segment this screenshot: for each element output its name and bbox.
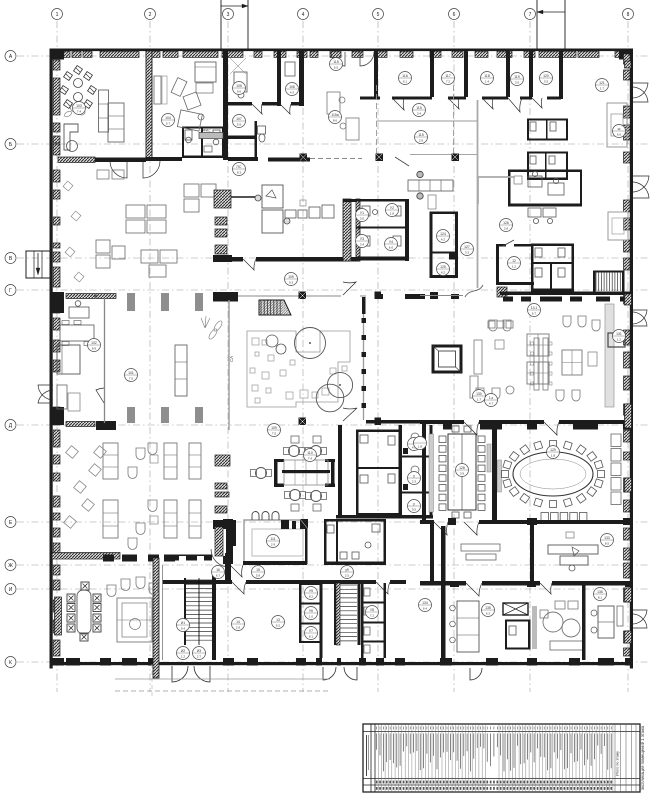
svg-text:3.4: 3.4 — [360, 242, 365, 246]
svg-text:у: у — [413, 474, 415, 478]
svg-text:110: 110 — [307, 451, 313, 455]
svg-text:8.3: 8.3 — [237, 170, 242, 174]
svg-text:125: 125 — [440, 265, 446, 269]
svg-text:136: 136 — [597, 590, 603, 594]
svg-text:7.0: 7.0 — [129, 376, 134, 380]
svg-text:115: 115 — [418, 133, 424, 137]
svg-text:6.4: 6.4 — [423, 606, 428, 610]
svg-text:8.2: 8.2 — [309, 594, 314, 598]
svg-text:ПС: ПС — [237, 165, 242, 169]
svg-text:И3: И3 — [197, 649, 201, 653]
svg-text:У5: У5 — [309, 589, 313, 593]
svg-text:6.5: 6.5 — [334, 65, 339, 69]
svg-text:107: 107 — [236, 117, 242, 121]
svg-text:14: 14 — [236, 620, 240, 624]
svg-text:4.2: 4.2 — [441, 237, 446, 241]
svg-text:1.0: 1.0 — [309, 614, 314, 618]
svg-text:104: 104 — [165, 116, 171, 120]
svg-text:4.2: 4.2 — [441, 270, 446, 274]
svg-text:9.6: 9.6 — [237, 89, 242, 93]
svg-text:111: 111 — [270, 537, 275, 541]
svg-text:109: 109 — [271, 426, 277, 430]
svg-text:7.5: 7.5 — [272, 431, 277, 435]
svg-text:6.1: 6.1 — [403, 79, 408, 83]
svg-text:106: 106 — [289, 85, 295, 89]
svg-text:И: И — [9, 587, 13, 593]
svg-text:3: 3 — [227, 12, 230, 18]
svg-text:8.9: 8.9 — [92, 346, 97, 350]
svg-text:12: 12 — [512, 259, 516, 263]
svg-text:У4: У4 — [389, 240, 393, 244]
svg-text:3.0: 3.0 — [360, 216, 365, 220]
svg-text:2.5: 2.5 — [345, 573, 350, 577]
svg-text:117: 117 — [445, 74, 451, 78]
svg-text:102: 102 — [91, 341, 97, 345]
svg-text:131: 131 — [616, 332, 622, 336]
svg-text:124: 124 — [440, 232, 446, 236]
svg-text:2.9: 2.9 — [419, 138, 424, 142]
svg-text:6.2: 6.2 — [276, 623, 281, 627]
svg-text:130: 130 — [476, 392, 482, 396]
svg-text:109: 109 — [288, 275, 294, 279]
svg-text:1.8: 1.8 — [418, 444, 423, 448]
svg-text:8: 8 — [627, 12, 630, 18]
svg-text:6.6: 6.6 — [389, 245, 394, 249]
svg-text:7.2: 7.2 — [370, 613, 375, 617]
svg-text:8.1: 8.1 — [309, 634, 314, 638]
svg-text:6.7: 6.7 — [532, 311, 537, 315]
svg-text:133: 133 — [604, 536, 610, 540]
svg-text:6: 6 — [453, 12, 456, 18]
svg-text:У6: У6 — [309, 609, 313, 613]
svg-text:У2: У2 — [390, 206, 394, 210]
svg-text:Г: Г — [9, 288, 12, 294]
svg-text:1.7: 1.7 — [600, 86, 605, 90]
svg-text:13.1: 13.1 — [531, 306, 538, 310]
svg-text:118: 118 — [484, 74, 490, 78]
svg-text:3.0: 3.0 — [515, 80, 520, 84]
svg-text:К: К — [9, 660, 12, 666]
svg-text:1.2: 1.2 — [181, 654, 186, 658]
svg-text:СА: СА — [229, 356, 234, 362]
svg-text:115: 115 — [416, 106, 422, 110]
svg-text:115а: 115а — [331, 113, 338, 117]
svg-text:6.7: 6.7 — [216, 573, 221, 577]
svg-text:4.3: 4.3 — [290, 90, 295, 94]
svg-text:8.1: 8.1 — [598, 595, 603, 599]
svg-text:1.2: 1.2 — [617, 337, 622, 341]
svg-text:15: 15 — [256, 568, 260, 572]
svg-text:7.4: 7.4 — [308, 456, 313, 460]
svg-text:У3: У3 — [360, 237, 364, 241]
svg-text:127: 127 — [464, 245, 470, 249]
svg-text:8.6: 8.6 — [333, 118, 338, 122]
svg-text:1.8: 1.8 — [390, 211, 395, 215]
svg-text:экспликация помещений 1 этажа: экспликация помещений 1 этажа — [640, 725, 645, 790]
svg-text:у: у — [413, 502, 415, 506]
svg-text:16: 16 — [216, 568, 220, 572]
svg-text:13: 13 — [276, 618, 280, 622]
svg-text:у9: у9 — [345, 568, 349, 572]
svg-text:126: 126 — [503, 221, 509, 225]
svg-text:1.4: 1.4 — [485, 79, 490, 83]
svg-text:Итого по этажу: Итого по этажу — [616, 751, 620, 776]
svg-text:129: 129 — [550, 448, 556, 452]
svg-text:2.9: 2.9 — [236, 625, 241, 629]
svg-text:119: 119 — [514, 75, 520, 79]
svg-text:4.7: 4.7 — [489, 401, 494, 405]
svg-text:7.4: 7.4 — [77, 109, 82, 113]
svg-text:5.9: 5.9 — [237, 122, 242, 126]
svg-text:103: 103 — [76, 104, 82, 108]
svg-text:У8: У8 — [370, 608, 374, 612]
svg-text:121: 121 — [599, 81, 605, 85]
svg-text:И2: И2 — [181, 649, 185, 653]
svg-text:9.3: 9.3 — [289, 280, 294, 284]
svg-text:У1: У1 — [360, 211, 364, 215]
svg-text:6.3: 6.3 — [486, 611, 491, 615]
svg-text:105: 105 — [236, 84, 242, 88]
svg-text:134: 134 — [422, 601, 428, 605]
svg-text:3.5: 3.5 — [544, 79, 549, 83]
svg-text:1.8: 1.8 — [551, 453, 556, 457]
svg-text:3.3: 3.3 — [465, 250, 470, 254]
svg-text:128: 128 — [459, 466, 465, 470]
svg-text:4: 4 — [302, 12, 305, 18]
svg-text:2.8: 2.8 — [504, 226, 509, 230]
svg-text:ОФИС: ОФИС — [201, 129, 211, 133]
svg-text:5.4: 5.4 — [181, 626, 186, 630]
svg-text:5.7: 5.7 — [166, 121, 171, 125]
svg-text:135: 135 — [485, 606, 491, 610]
svg-text:7: 7 — [529, 12, 532, 18]
svg-text:120: 120 — [543, 74, 549, 78]
svg-text:3.4: 3.4 — [417, 111, 422, 115]
svg-text:Ж: Ж — [8, 563, 13, 569]
svg-text:9.5: 9.5 — [412, 507, 417, 511]
svg-text:8.5: 8.5 — [605, 541, 610, 545]
svg-text:5.8: 5.8 — [256, 573, 261, 577]
svg-text:ш: ш — [618, 127, 621, 131]
svg-text:2.9: 2.9 — [271, 542, 276, 546]
svg-text:У7: У7 — [309, 629, 313, 633]
svg-text:1.2: 1.2 — [512, 264, 517, 268]
svg-text:2.7: 2.7 — [197, 654, 202, 658]
svg-text:101: 101 — [128, 371, 134, 375]
svg-text:7.2: 7.2 — [446, 79, 451, 83]
svg-text:И1: И1 — [181, 621, 185, 625]
svg-text:2.3: 2.3 — [412, 479, 417, 483]
svg-text:1.к: 1.к — [489, 396, 494, 400]
svg-text:2: 2 — [149, 12, 152, 18]
svg-text:3.9: 3.9 — [460, 471, 465, 475]
svg-text:5: 5 — [377, 12, 380, 18]
svg-text:115: 115 — [333, 60, 339, 64]
svg-text:1: 1 — [56, 12, 59, 18]
svg-text:116: 116 — [402, 74, 408, 78]
svg-text:6.6: 6.6 — [617, 132, 622, 136]
svg-text:1.7: 1.7 — [477, 397, 482, 401]
